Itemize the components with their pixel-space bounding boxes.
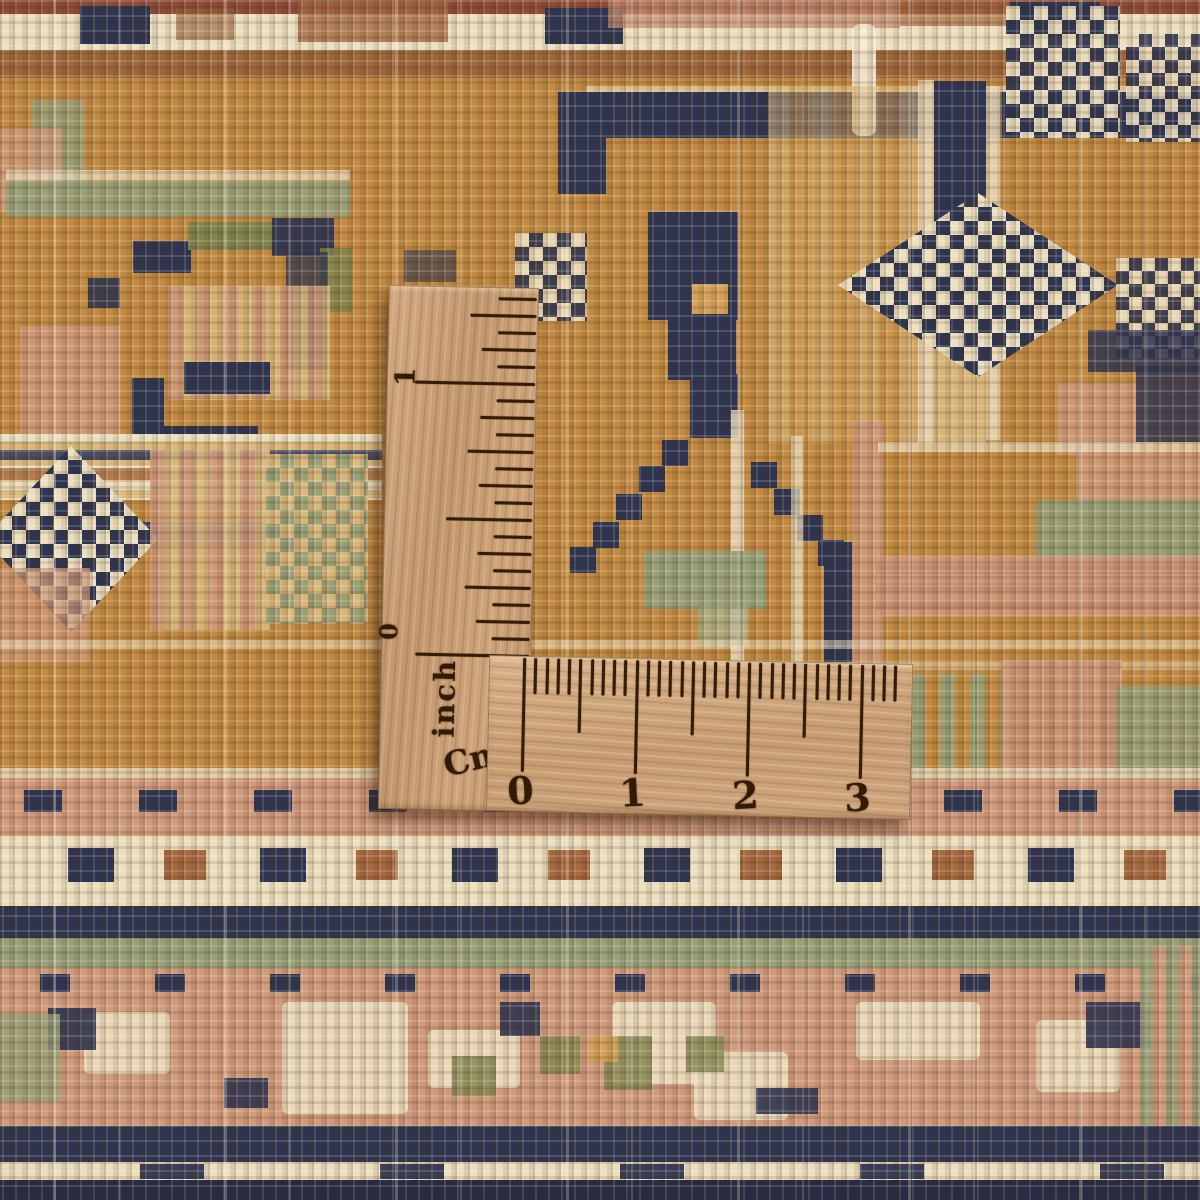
checker-right-edge [1126, 34, 1200, 142]
top-rust-patch [900, 0, 1010, 26]
sage-block-center [644, 551, 766, 609]
checker-top-right [1006, 6, 1120, 138]
gable-dot [570, 547, 596, 573]
salmon-field [0, 1002, 1200, 1128]
meander-block [188, 222, 274, 250]
ochre-dot [588, 1036, 618, 1062]
navy-dash-row [140, 1164, 1200, 1179]
navy-patch [404, 250, 456, 282]
sage-line-band [0, 938, 1200, 968]
salmon-columns-left [150, 450, 270, 630]
sage-line-left [6, 181, 350, 217]
navy-band-bottom [0, 1180, 1200, 1200]
meander-block [88, 278, 120, 308]
navy-blob-right [1136, 366, 1200, 442]
carpet-weave [0, 0, 1200, 1200]
top-brown-patch [176, 8, 234, 40]
navy-bit [756, 1088, 818, 1114]
gable-dot [639, 466, 665, 492]
rose-patch-right [1076, 452, 1200, 504]
gable-dot [616, 494, 642, 520]
gable-dot [662, 440, 688, 466]
carpet-photo-scene: 1 0 inch Cm 0 1 2 3 [0, 0, 1200, 1200]
top-rust-patch [298, 2, 448, 42]
olive-bit [452, 1056, 496, 1096]
navy-line-band [0, 906, 1200, 938]
cream-line [0, 640, 1200, 649]
tree-motif-mid [668, 314, 736, 380]
guard-rust-dashes [164, 850, 1200, 880]
navy-dash-row [24, 790, 1200, 812]
navy-band [0, 1126, 1200, 1164]
navy-bit [224, 1078, 268, 1108]
sage-column-right [1140, 946, 1200, 1126]
sage-patch-right [1036, 500, 1200, 560]
top-navy-block [80, 6, 150, 44]
meander-connector [558, 92, 606, 194]
gable-dot [593, 522, 619, 548]
meander-block [184, 362, 270, 394]
sage-column-left [0, 1014, 60, 1102]
salmon-column [853, 421, 883, 671]
cream-motif [282, 1002, 408, 1114]
navy-bit [500, 1002, 540, 1036]
cream-line [0, 768, 1200, 778]
gable-dot [751, 462, 777, 488]
olive-bit [686, 1036, 724, 1072]
cream-motif [84, 1012, 170, 1074]
cream-line [878, 442, 1200, 452]
rose-rows-right [876, 556, 1200, 616]
checker-above-corner [515, 233, 587, 321]
meander-block [133, 241, 191, 273]
cream-column [791, 436, 803, 664]
navy-dash-row [40, 974, 1200, 992]
cream-line [6, 170, 350, 180]
olive-bit [540, 1036, 580, 1074]
sage-checker-left [266, 454, 368, 624]
cream-motif [856, 1002, 980, 1060]
